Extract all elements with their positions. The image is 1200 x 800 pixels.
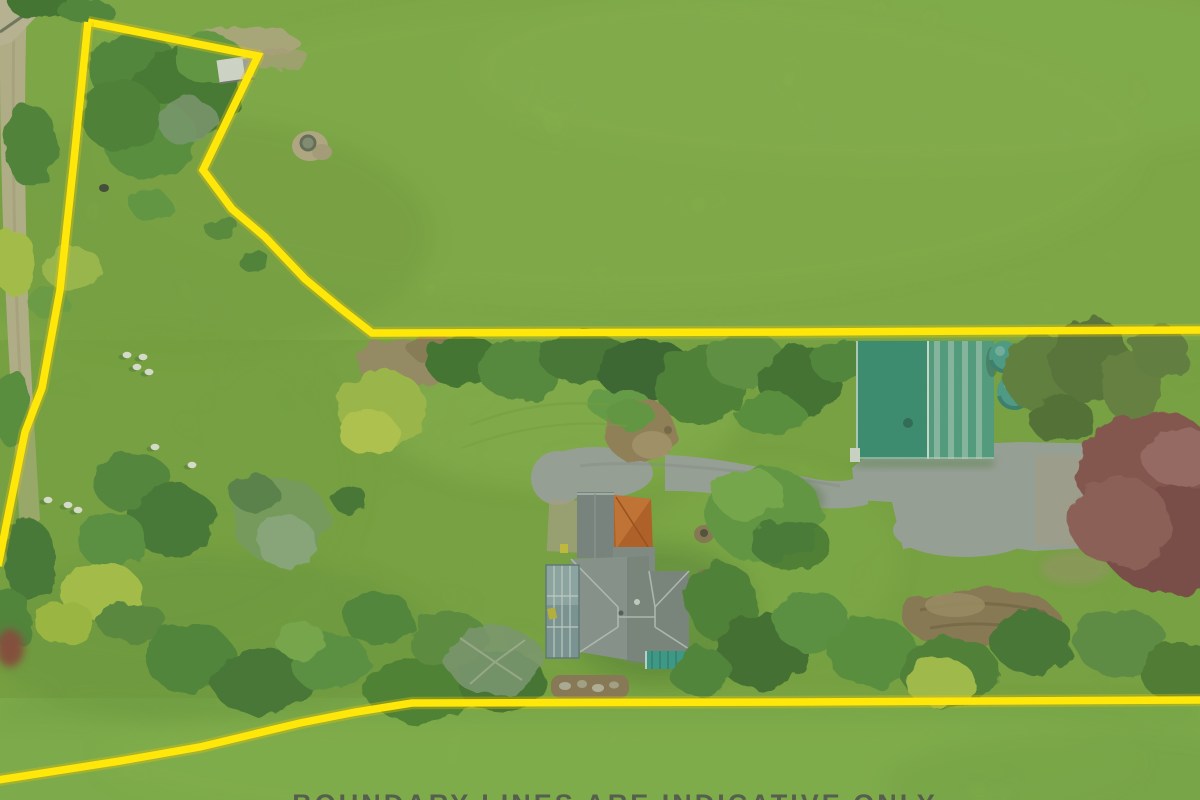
boundary-disclaimer-text: BOUNDARY LINES ARE INDICATIVE ONLY <box>292 789 938 800</box>
grain-light <box>0 0 1200 800</box>
aerial-property-photo: BOUNDARY LINES ARE INDICATIVE ONLY <box>0 0 1200 800</box>
aerial-photo-canvas: BOUNDARY LINES ARE INDICATIVE ONLY <box>0 0 1200 800</box>
